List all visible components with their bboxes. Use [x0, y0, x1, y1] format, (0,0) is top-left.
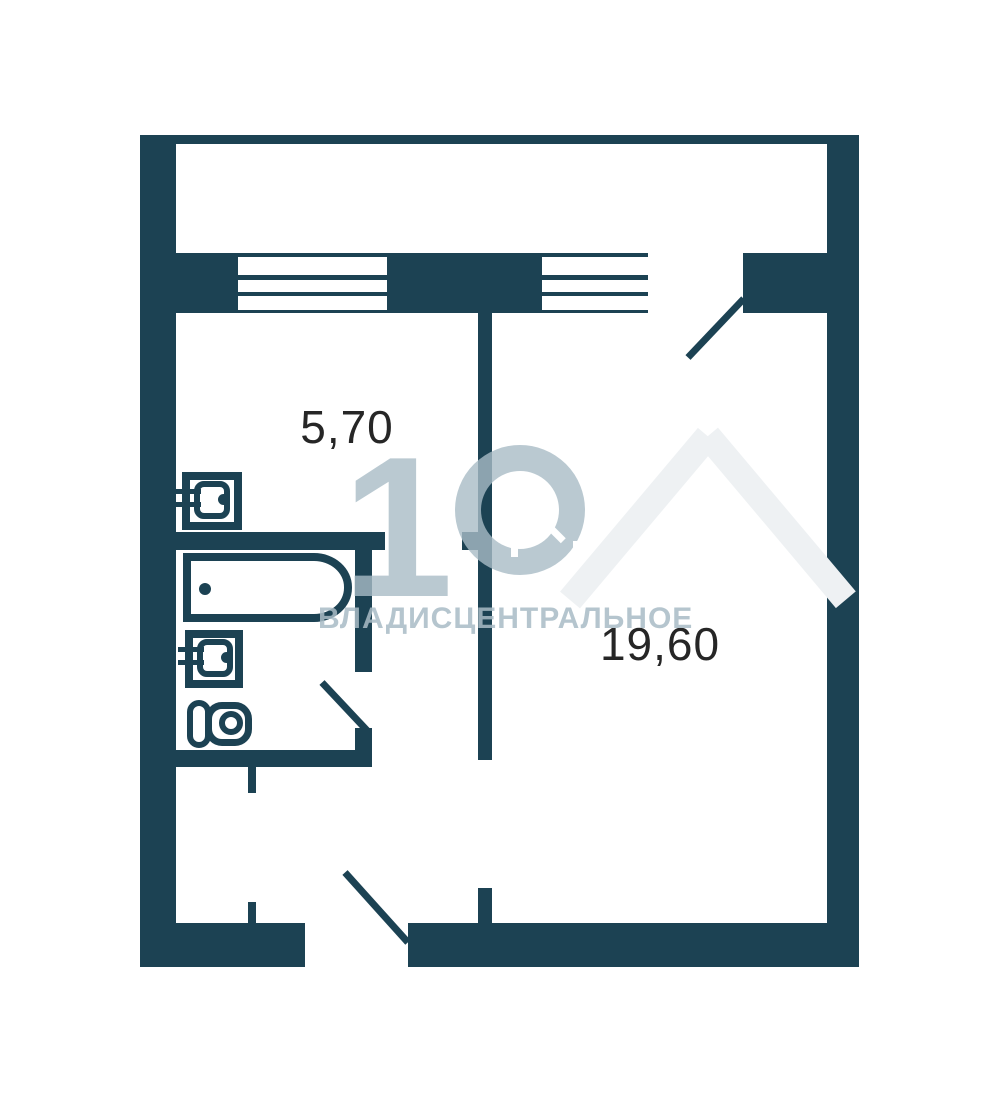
sink-tap-tick — [175, 489, 201, 494]
sink-tap-tick — [178, 647, 204, 652]
balcony-window-left — [238, 253, 387, 313]
watermark-text: ВЛАДИСЦЕНТРАЛЬНОЕ — [318, 602, 693, 636]
watermark-logo-numeral: 1 — [342, 428, 453, 628]
window-wall-mid-segment — [387, 253, 542, 313]
right-outer-wall — [827, 135, 859, 967]
bathroom-bottom-wall — [176, 750, 372, 767]
living-room-partition-stub — [478, 888, 492, 923]
watermark-house-wall — [511, 541, 518, 557]
sink-drain — [221, 652, 232, 663]
balcony-window-right — [542, 253, 648, 313]
bottom-wall-left-segment — [140, 923, 305, 967]
balcony-top-wall — [140, 135, 859, 144]
closet-partition-top — [248, 767, 256, 793]
toilet-icon — [187, 700, 253, 748]
bathtub-drain — [199, 583, 211, 595]
left-outer-wall — [140, 135, 176, 967]
watermark-house-roof — [533, 510, 566, 543]
watermark-logo-ring — [455, 445, 585, 575]
sink-tap-tick — [175, 502, 201, 507]
kitchen-sink-icon — [182, 472, 242, 530]
toilet-bowl-inner — [219, 711, 243, 735]
closet-partition-bottom — [248, 902, 256, 923]
sink-tap-tick — [178, 660, 204, 665]
balcony-door-leaf — [685, 296, 746, 360]
entrance-door-leaf — [342, 870, 410, 945]
watermark-house-wall — [573, 541, 580, 557]
sink-drain — [218, 494, 229, 505]
bathroom-door-leaf — [319, 680, 369, 733]
bottom-wall-right-segment — [408, 923, 859, 967]
floor-plan: 5,70 19,60 1 ВЛАДИСЦЕНТРАЛЬНОЕ — [0, 0, 991, 1101]
window-wall-right-segment — [743, 253, 827, 313]
bathroom-sink-icon — [185, 630, 243, 688]
window-wall-left-segment — [176, 253, 238, 313]
